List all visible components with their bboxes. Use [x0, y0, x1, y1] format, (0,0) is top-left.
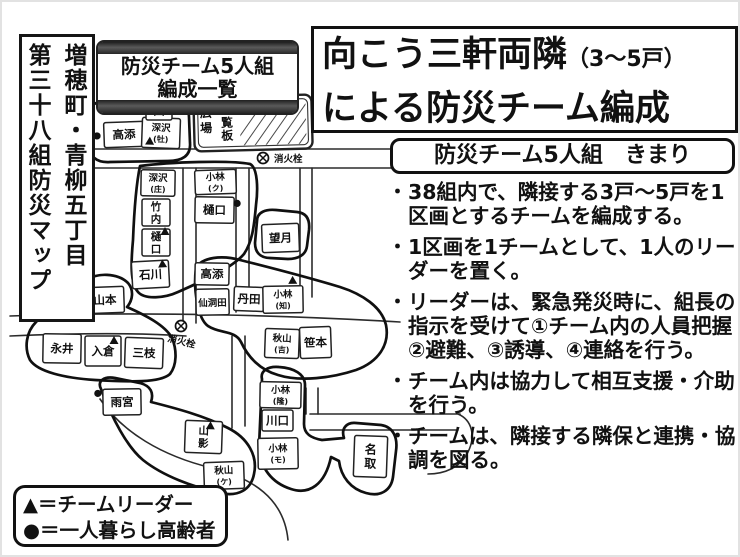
- bullet-icon: ・: [388, 369, 408, 417]
- banner-bottom-bar: [98, 100, 297, 113]
- map-area-label-line1: 増穂町・青柳五丁目: [55, 43, 91, 313]
- fire-hydrant-label: 消火栓: [274, 153, 303, 165]
- map-house: 樋口: [195, 197, 241, 224]
- map-house: 山影: [184, 420, 222, 453]
- map-house: 深沢(庄): [141, 170, 175, 197]
- map-house: 小林(知): [263, 276, 304, 314]
- map-house: 深沢(牡): [141, 117, 180, 148]
- banner-title-line1: 防災チーム5人組: [98, 55, 297, 78]
- legend-box: ▲＝チームリーダー ●＝一人暮らし高齢者: [13, 485, 228, 547]
- rule-item: ・リーダーは、緊急発災時に、組長の指示を受けて①チーム内の人員把握②避難、③誘導…: [388, 290, 740, 362]
- house-name-suffix: (ク): [208, 183, 224, 194]
- map-house: 望月: [262, 223, 300, 252]
- map-house: 小林(隆): [260, 382, 301, 409]
- map-house: 永井: [43, 334, 82, 364]
- rule-text: リーダーは、緊急発災時に、組長の指示を受けて①チーム内の人員把握②避難、③誘導、…: [408, 290, 740, 362]
- map-house: 高添: [195, 263, 229, 286]
- house-name: 仙洞田: [198, 297, 227, 309]
- map-house: 小林(ク): [195, 169, 237, 194]
- fire-hydrant-icon: 消火栓: [258, 153, 304, 166]
- house-name: 小林: [272, 288, 293, 300]
- legend-leader-line: ▲＝チームリーダー: [23, 492, 218, 518]
- main-title-box: 向こう三軒両隣（3～5戸） による防災チーム編成: [311, 26, 738, 133]
- house-name: 川口: [265, 414, 289, 428]
- banner-title-line2: 編成一覧: [98, 78, 297, 100]
- house-name: 樋口: [203, 203, 226, 217]
- house-name: 笹本: [303, 335, 328, 350]
- house-name: 小林: [205, 171, 226, 184]
- rule-text: チームは、隣接する隣保と連携・協調を図る。: [408, 424, 740, 472]
- rules-header-box: 防災チーム5人組 きまり: [390, 138, 735, 174]
- house-name: 小林: [267, 442, 288, 454]
- bullet-icon: ・: [388, 180, 408, 228]
- map-area-label-line2: 第三十八組防災マップ: [19, 43, 55, 313]
- slide: 広場回覧板高添深沢(牡)田深沢(庄)竹内樋口石川小林(ク)樋口望月高添仙洞田丹田…: [0, 0, 740, 557]
- rule-item: ・チーム内は協力して相互支援・介助を行う。: [388, 369, 740, 417]
- fire-hydrant-icon: 消火栓: [166, 321, 197, 351]
- title-line1: 向こう三軒両隣（3～5戸）: [322, 30, 729, 85]
- house-name-suffix: (モ): [270, 455, 285, 464]
- house-name: 望月: [269, 231, 292, 246]
- house-name: 小林: [270, 384, 291, 396]
- banner-top-bar: [98, 42, 297, 54]
- map-house: 丹田: [234, 286, 265, 311]
- house-name: 永井: [49, 341, 74, 355]
- map-area-label-box: 増穂町・青柳五丁目 第三十八組防災マップ: [19, 34, 95, 322]
- map-house: 石川: [131, 259, 169, 289]
- map-house: 笹本: [299, 326, 331, 358]
- house-name: 入倉: [92, 344, 115, 358]
- house-name-suffix: (隆): [273, 396, 288, 406]
- house-name: 高添: [112, 127, 136, 142]
- map-house: 小林(モ): [258, 438, 299, 470]
- title-line1-main: 向こう三軒両隣: [322, 35, 567, 75]
- house-name: 山本: [93, 293, 117, 308]
- map-house: 竹内: [142, 199, 170, 226]
- house-name: 丹田: [237, 292, 260, 307]
- house-name: 樋口: [151, 230, 162, 256]
- house-name: 竹内: [150, 200, 162, 226]
- rule-text: 1区画を1チームとして、1人のリーダーを置く。: [408, 235, 740, 283]
- house-name: 秋山: [271, 332, 291, 345]
- bullet-icon: ・: [388, 424, 408, 472]
- rule-item: ・チームは、隣接する隣保と連携・協調を図る。: [388, 424, 740, 472]
- house-name: 名取: [364, 441, 377, 470]
- team-leader-marker: [288, 276, 297, 284]
- map-house: 高添: [93, 121, 144, 148]
- house-name: 石川: [138, 267, 163, 282]
- rule-text: チーム内は協力して相互支援・介助を行う。: [408, 369, 740, 417]
- rule-item: ・38組内で、隣接する3戸～5戸を1区画とするチームを編成する。: [388, 180, 740, 228]
- house-name: 深沢: [148, 172, 168, 184]
- house-name-suffix: (庄): [150, 184, 165, 194]
- house-name-suffix: (牡): [153, 134, 169, 145]
- rules-list: ・38組内で、隣接する3戸～5戸を1区画とするチームを編成する。・1区画を1チー…: [388, 180, 740, 479]
- house-name-suffix: (吉): [274, 344, 290, 355]
- house-name: 三枝: [132, 346, 156, 361]
- rule-item: ・1区画を1チームとして、1人のリーダーを置く。: [388, 235, 740, 283]
- map-house: 名取: [353, 435, 387, 477]
- house-name: 秋山: [213, 464, 233, 477]
- rule-text: 38組内で、隣接する3戸～5戸を1区画とするチームを編成する。: [408, 180, 740, 228]
- house-name: 高添: [200, 267, 224, 281]
- bullet-icon: ・: [388, 290, 408, 362]
- house-name: 深沢: [151, 122, 171, 135]
- map-house: 仙洞田: [196, 289, 229, 316]
- house-name-suffix: (知): [275, 300, 290, 310]
- title-line1-paren: （3～5戸）: [567, 47, 686, 72]
- formation-banner: 防災チーム5人組 編成一覧: [96, 40, 299, 115]
- map-house: 三枝: [124, 337, 163, 368]
- title-line2: による防災チーム編成: [322, 85, 729, 134]
- house-name: 雨宮: [110, 395, 133, 409]
- map-house: 秋山(吉): [265, 328, 300, 358]
- legend-elderly-line: ●＝一人暮らし高齢者: [23, 518, 218, 544]
- map-house: 樋口: [142, 227, 170, 256]
- bullet-icon: ・: [388, 235, 408, 283]
- map-house: 川口: [262, 410, 293, 431]
- map-house: 入倉: [85, 336, 121, 366]
